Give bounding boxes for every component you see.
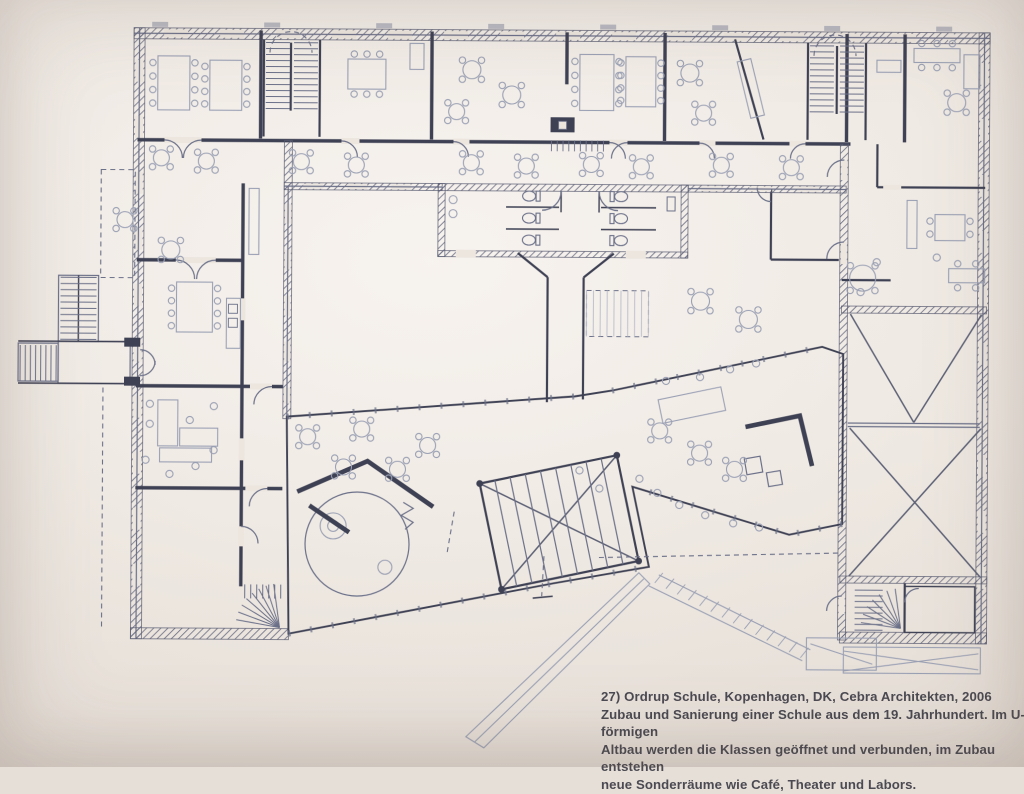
book-page-photo: 27) Ordrup Schule, Kopenhagen, DK, Cebra…: [0, 0, 1024, 767]
hall-cross-bracing: [849, 314, 982, 577]
door-arcs: [139, 140, 922, 612]
new-addition: [285, 344, 843, 637]
faint-stair: [586, 290, 648, 336]
wc-block: [438, 184, 839, 260]
stage-circle: [305, 492, 410, 597]
caption-line-2: Zubau und Sanierung einer Schule aus dem…: [601, 706, 1024, 741]
top-band-classrooms: [137, 30, 905, 145]
right-wing: [837, 34, 990, 674]
floor-plan: [0, 0, 1024, 770]
cafe-counter: [744, 415, 812, 487]
left-wing: [135, 183, 284, 587]
caption-line-1: 27) Ordrup Schule, Kopenhagen, DK, Cebra…: [601, 688, 1024, 706]
west-entrance-stair: [17, 169, 142, 628]
hall-a: [283, 141, 443, 420]
caption-line-3: Altbau werden die Klassen geöffnet und v…: [601, 741, 1024, 776]
caption-line-4: neue Sonderräume wie Café, Theater und L…: [601, 776, 1024, 794]
figure-caption: 27) Ordrup Schule, Kopenhagen, DK, Cebra…: [601, 688, 1024, 794]
